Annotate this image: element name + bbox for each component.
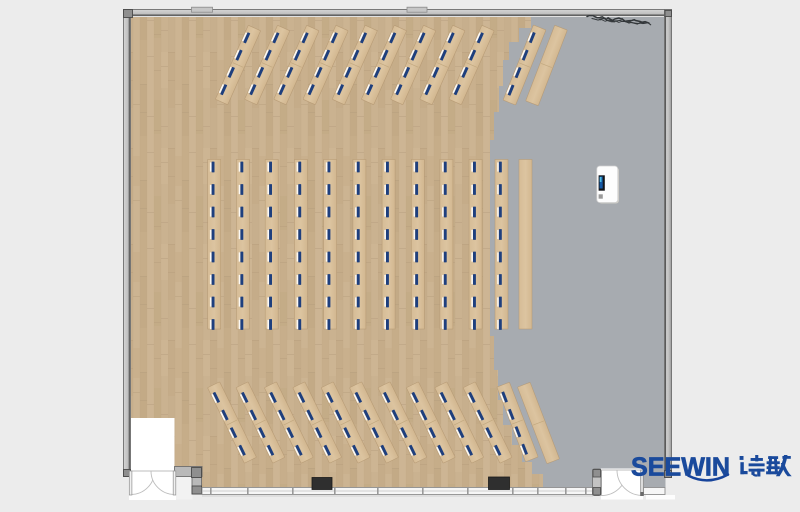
- svg-text:SEEWIN: SEEWIN: [631, 454, 730, 482]
